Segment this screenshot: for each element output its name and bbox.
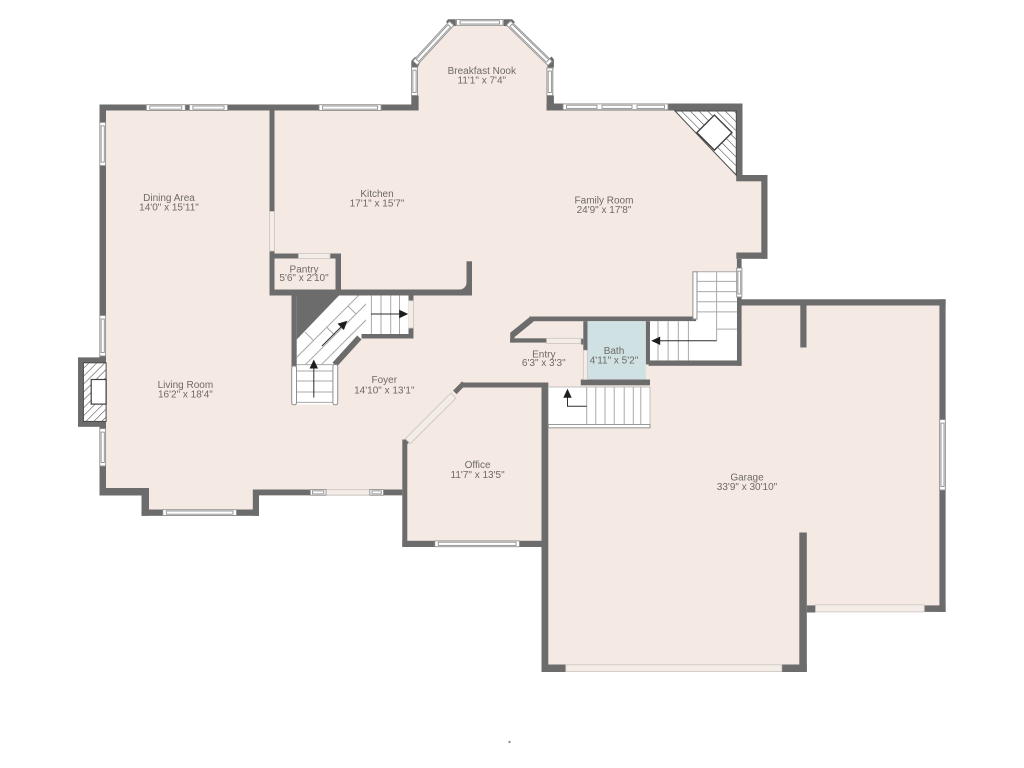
svg-text:14'10" x 13'1": 14'10" x 13'1" xyxy=(354,386,415,397)
svg-text:6'3" x 3'3": 6'3" x 3'3" xyxy=(522,358,566,369)
svg-text:17'1" x 15'7": 17'1" x 15'7" xyxy=(350,199,405,210)
svg-text:11'7" x 13'5": 11'7" x 13'5" xyxy=(451,470,506,481)
svg-text:24'9" x 17'8": 24'9" x 17'8" xyxy=(577,205,632,216)
svg-text:16'2" x 18'4": 16'2" x 18'4" xyxy=(158,390,213,401)
svg-text:Foyer: Foyer xyxy=(372,375,398,386)
svg-text:14'0" x 15'11": 14'0" x 15'11" xyxy=(139,203,199,214)
svg-text:11'1" x 7'4": 11'1" x 7'4" xyxy=(458,76,507,87)
svg-text:4'11" x 5'2": 4'11" x 5'2" xyxy=(590,356,639,367)
svg-text:33'9" x 30'10": 33'9" x 30'10" xyxy=(717,482,778,493)
svg-text:5'6" x 2'10": 5'6" x 2'10" xyxy=(279,273,329,284)
